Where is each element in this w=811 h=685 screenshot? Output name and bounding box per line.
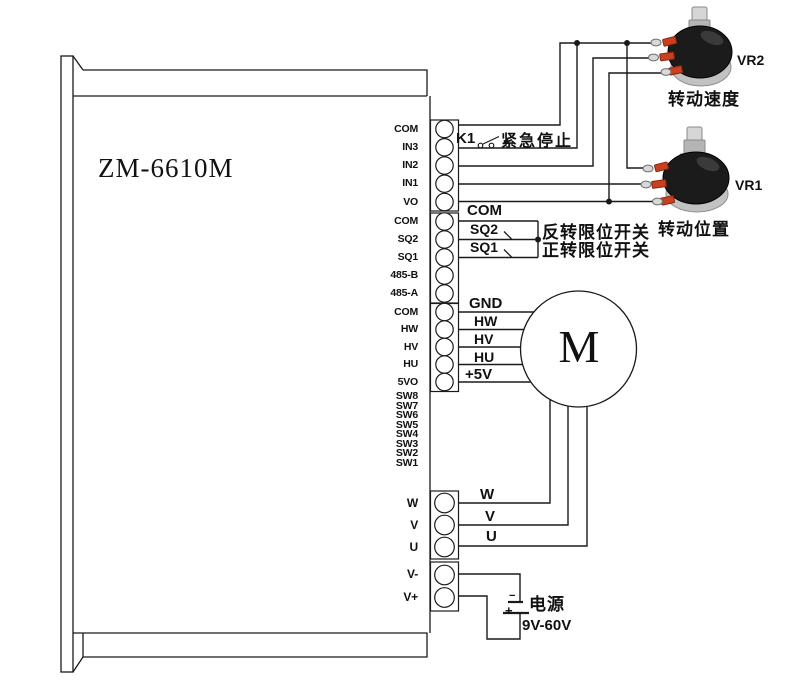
terminal-sq1	[436, 249, 453, 266]
wire-label-hu: HU	[474, 350, 494, 364]
wire-branch-vr1-top	[627, 43, 645, 168]
mounting-flange	[61, 56, 73, 672]
vr2-caption: 转动速度	[668, 91, 740, 110]
terminal-vplus	[435, 588, 455, 608]
terminal-label-sq2: SQ2	[398, 233, 418, 246]
terminal-com2	[436, 213, 453, 230]
potentiometer-vr2	[649, 7, 733, 86]
terminal-label-vplus: V+	[403, 591, 418, 604]
terminal-vminus	[435, 565, 455, 585]
emergency-stop-label: 紧急停止	[501, 131, 573, 150]
vr1-lug-bottom	[653, 198, 663, 205]
terminal-label-in3: IN3	[402, 141, 418, 154]
terminal-5vo	[436, 373, 453, 390]
terminal-label-com2: COM	[394, 215, 418, 228]
vr2-lug-wiper	[649, 54, 659, 61]
terminal-label-w: W	[407, 497, 418, 510]
terminal-label-v: V	[410, 519, 418, 532]
vr1-lug-wiper	[641, 181, 651, 188]
terminal-in3	[436, 139, 453, 156]
sq-switch-ticks	[504, 232, 512, 258]
k1-label: K1	[456, 131, 475, 146]
wire-label-v: V	[485, 509, 495, 524]
wire-com-to-vr2-top	[458, 43, 652, 125]
terminal-label-vo: VO	[403, 196, 418, 209]
wire-label-com: COM	[467, 203, 502, 218]
wire-label-plus5v: +5V	[465, 367, 492, 382]
terminal-sq2	[436, 231, 453, 248]
terminal-vo	[436, 193, 453, 210]
motor-letter: M	[557, 324, 601, 370]
potentiometer-vr1	[641, 127, 729, 212]
vr1-label: VR1	[735, 178, 762, 192]
wire-label-gnd: GND	[469, 296, 502, 311]
terminal-485a	[436, 285, 453, 302]
wire-label-sq2: SQ2	[470, 222, 498, 236]
power-supply-label: 电源	[529, 596, 565, 615]
terminal-label-hw: HW	[401, 323, 418, 336]
controller-outline	[61, 56, 430, 672]
terminal-com3	[436, 303, 453, 320]
wire-label-w: W	[480, 487, 494, 502]
vr2-label: VR2	[737, 53, 764, 67]
terminal-label-com1: COM	[394, 123, 418, 136]
terminal-label-in2: IN2	[402, 159, 418, 172]
wire-label-hv: HV	[474, 332, 493, 346]
wire-label-u: U	[486, 529, 497, 544]
terminal-in1	[436, 175, 453, 192]
vr1-lug-top	[643, 165, 653, 172]
terminal-v	[435, 515, 455, 535]
top-band	[73, 70, 427, 96]
terminal-strips	[431, 120, 459, 611]
terminal-label-u: U	[410, 541, 418, 554]
terminal-label-vminus: V-	[407, 568, 418, 581]
terminal-label-com3: COM	[394, 306, 418, 319]
battery-plus-sign: +	[505, 605, 513, 616]
vr2-lug-bottom	[661, 69, 671, 76]
terminal-com1	[436, 120, 453, 137]
vr2-lug-top	[651, 39, 661, 46]
wire-label-sq1: SQ1	[470, 240, 498, 254]
terminal-label-in1: IN1	[402, 177, 418, 190]
k1-switch-symbol	[478, 137, 499, 148]
terminal-label-sq1: SQ1	[398, 251, 418, 264]
wires-phase-wvu	[458, 400, 587, 546]
terminal-label-hv: HV	[404, 341, 418, 354]
terminal-label-hu: HU	[403, 358, 418, 371]
wire-label-hw: HW	[474, 314, 497, 328]
battery-minus-sign: −	[509, 591, 515, 602]
sq1-note: 正转限位开关	[542, 242, 650, 261]
terminal-hw	[436, 321, 453, 338]
flange-chamfers	[73, 56, 83, 672]
terminal-u	[435, 537, 455, 557]
terminal-hv	[436, 338, 453, 355]
power-voltage-range: 9V-60V	[522, 618, 571, 634]
terminal-label-sw1: SW1	[396, 459, 418, 469]
terminal-hu	[436, 356, 453, 373]
wiring-diagram: ZM-6610M COM IN3 IN2 IN1 VO COM SQ2 SQ1 …	[0, 0, 811, 685]
terminal-in2	[436, 157, 453, 174]
terminal-label-5vo: 5VO	[398, 376, 418, 389]
vr1-caption: 转动位置	[658, 221, 730, 240]
terminal-label-485a: 485-A	[390, 287, 418, 300]
device-model: ZM-6610M	[98, 154, 234, 182]
bottom-band	[73, 633, 427, 657]
terminal-w	[435, 493, 455, 513]
terminal-485b	[436, 267, 453, 284]
terminal-label-485b: 485-B	[390, 269, 418, 282]
